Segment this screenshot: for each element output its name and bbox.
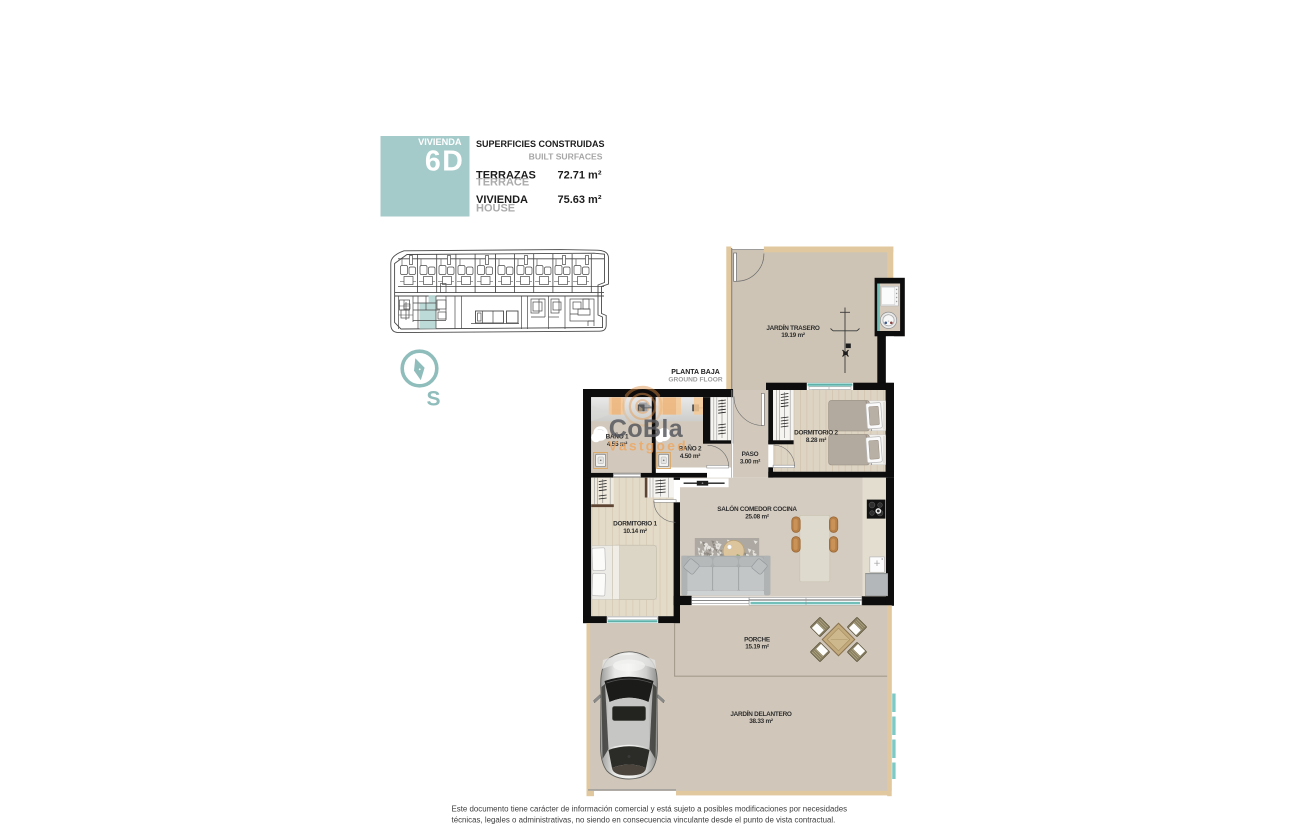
svg-text:72.71 m²: 72.71 m² bbox=[557, 170, 601, 182]
svg-text:75.63 m²: 75.63 m² bbox=[557, 194, 601, 206]
svg-text:HOUSE: HOUSE bbox=[476, 203, 515, 215]
svg-text:10.14 m²: 10.14 m² bbox=[623, 528, 647, 535]
svg-text:S: S bbox=[426, 388, 440, 411]
svg-text:SUPERFICIES CONSTRUIDAS: SUPERFICIES CONSTRUIDAS bbox=[476, 139, 605, 149]
svg-text:SALÓN COMEDOR COCINA: SALÓN COMEDOR COCINA bbox=[717, 504, 797, 513]
svg-text:BUILT SURFACES: BUILT SURFACES bbox=[529, 152, 603, 162]
svg-text:Vastgoed: Vastgoed bbox=[608, 437, 688, 453]
svg-text:4.50 m²: 4.50 m² bbox=[680, 453, 700, 460]
svg-text:8.28 m²: 8.28 m² bbox=[806, 437, 826, 444]
svg-text:JARDÍN TRASERO: JARDÍN TRASERO bbox=[766, 323, 820, 332]
svg-text:3.00 m²: 3.00 m² bbox=[740, 458, 760, 465]
svg-text:Este documento tiene carácter: Este documento tiene carácter de informa… bbox=[452, 805, 848, 814]
svg-text:38.33 m²: 38.33 m² bbox=[749, 718, 773, 725]
svg-text:GROUND FLOOR: GROUND FLOOR bbox=[668, 377, 722, 384]
svg-text:6D: 6D bbox=[425, 146, 465, 178]
svg-text:TERRACE: TERRACE bbox=[476, 177, 529, 189]
svg-text:DORMITORIO 1: DORMITORIO 1 bbox=[613, 521, 657, 528]
svg-text:PLANTA BAJA: PLANTA BAJA bbox=[671, 369, 720, 376]
svg-text:JARDÍN DELANTERO: JARDÍN DELANTERO bbox=[730, 709, 792, 718]
svg-text:técnicas, legales o administra: técnicas, legales o administrativas, no … bbox=[452, 816, 836, 825]
svg-text:19.19 m²: 19.19 m² bbox=[781, 332, 805, 339]
svg-text:DORMITORIO 2: DORMITORIO 2 bbox=[794, 430, 838, 437]
svg-text:25.08 m²: 25.08 m² bbox=[745, 513, 769, 520]
svg-text:PASO: PASO bbox=[742, 451, 759, 458]
svg-text:15.19 m²: 15.19 m² bbox=[745, 643, 769, 650]
